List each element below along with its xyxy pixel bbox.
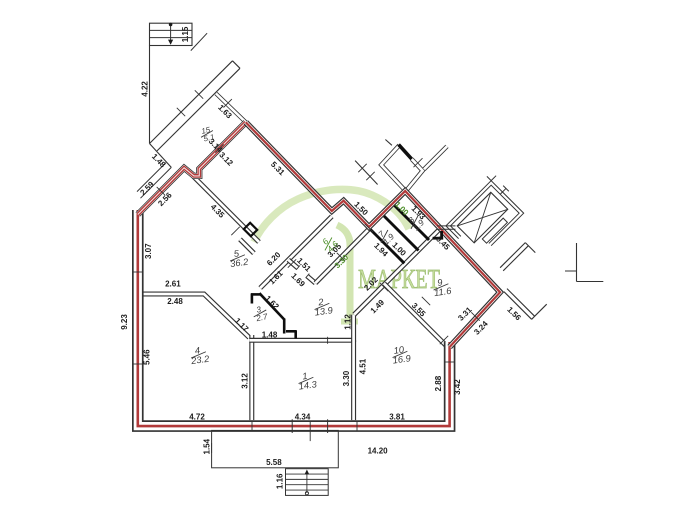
svg-text:2.88: 2.88 [434,375,443,391]
svg-text:1.15: 1.15 [181,26,190,42]
svg-text:4.51: 4.51 [359,358,368,374]
svg-text:3.12: 3.12 [241,373,250,389]
svg-text:3.30: 3.30 [342,370,351,386]
svg-text:1.54: 1.54 [202,438,211,454]
svg-text:4.72: 4.72 [189,413,205,422]
svg-text:1.48: 1.48 [262,331,278,340]
svg-text:3.81: 3.81 [389,413,405,422]
svg-text:5.46: 5.46 [143,349,152,365]
svg-text:1.12: 1.12 [344,314,353,330]
svg-text:3.42: 3.42 [453,379,462,395]
svg-text:3.07: 3.07 [144,243,153,259]
svg-text:9.23: 9.23 [120,314,129,330]
svg-text:4.34: 4.34 [295,413,311,422]
svg-text:2.61: 2.61 [165,280,181,289]
svg-text:14.20: 14.20 [368,447,389,456]
svg-text:4.22: 4.22 [140,81,149,97]
svg-text:1.16: 1.16 [276,473,285,489]
svg-text:2.48: 2.48 [167,297,183,306]
svg-text:5.58: 5.58 [266,458,282,467]
